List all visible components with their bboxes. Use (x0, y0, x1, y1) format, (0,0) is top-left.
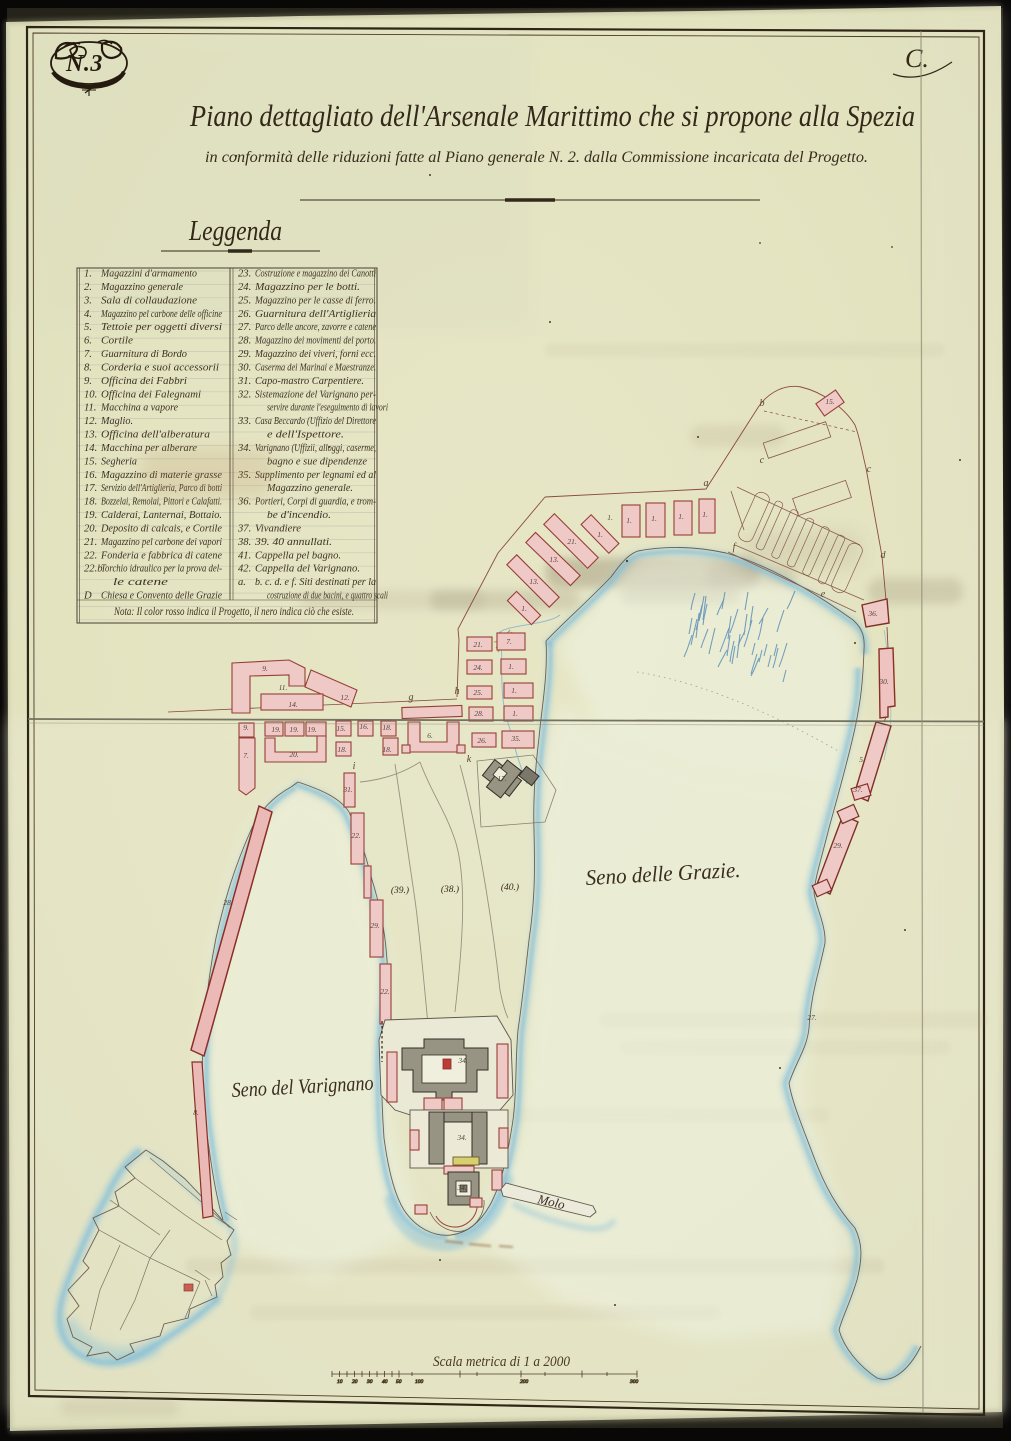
svg-text:17.: 17. (497, 774, 507, 783)
svg-text:100: 100 (415, 1379, 424, 1385)
svg-text:20: 20 (352, 1379, 358, 1385)
svg-text:21.: 21. (567, 537, 577, 546)
svg-text:18.: 18. (382, 723, 392, 732)
svg-text:h: h (455, 686, 460, 697)
svg-text:36.: 36. (867, 609, 878, 618)
svg-text:29.: 29. (370, 921, 380, 930)
svg-text:1.: 1. (521, 604, 527, 613)
svg-text:31.: 31. (342, 785, 353, 794)
svg-text:10: 10 (337, 1379, 343, 1385)
svg-text:1.: 1. (597, 530, 603, 539)
svg-text:c: c (867, 464, 872, 475)
svg-text:a: a (704, 478, 709, 489)
svg-text:C.: C. (905, 44, 929, 73)
svg-text:18.: 18. (337, 745, 347, 754)
svg-text:27.: 27. (807, 1013, 817, 1022)
svg-text:in conformità delle riduzioni: in conformità delle riduzioni fatte al P… (205, 149, 868, 166)
svg-text:7.: 7. (506, 637, 512, 646)
svg-text:34.: 34. (456, 1183, 467, 1192)
svg-text:1.: 1. (626, 516, 632, 525)
svg-text:(39.): (39.) (391, 885, 409, 896)
svg-text:9.: 9. (262, 664, 268, 673)
svg-text:13.: 13. (529, 577, 539, 586)
svg-text:9.: 9. (243, 723, 249, 732)
svg-text:14.: 14. (288, 700, 298, 709)
svg-text:i: i (353, 761, 356, 772)
svg-text:26.: 26. (477, 736, 487, 745)
svg-text:15.: 15. (336, 724, 346, 733)
svg-text:30: 30 (366, 1379, 373, 1385)
svg-text:b: b (760, 398, 765, 409)
svg-text:c: c (760, 455, 765, 466)
svg-text:N.3: N.3 (65, 51, 103, 77)
svg-text:(38.): (38.) (441, 884, 459, 895)
svg-text:22.: 22. (351, 831, 361, 840)
svg-text:22.: 22. (380, 987, 390, 996)
svg-text:19.: 19. (307, 725, 317, 734)
svg-text:Leggenda: Leggenda (188, 215, 282, 247)
svg-text:34.: 34. (456, 1133, 467, 1142)
svg-text:20.: 20. (289, 750, 299, 759)
svg-text:Scala metrica di 1 a 2000: Scala metrica di 1 a 2000 (433, 1354, 571, 1370)
svg-text:e: e (821, 589, 826, 600)
svg-text:Piano dettagliato dell'Arsenal: Piano dettagliato dell'Arsenale Marittim… (189, 98, 915, 133)
svg-text:25.: 25. (473, 688, 483, 697)
svg-text:35.: 35. (510, 734, 521, 743)
svg-text:300: 300 (629, 1379, 639, 1385)
svg-text:28.: 28. (223, 898, 233, 907)
svg-text:24.: 24. (473, 663, 483, 672)
svg-text:18.: 18. (382, 745, 392, 754)
svg-text:g: g (409, 692, 414, 703)
svg-text:8.: 8. (193, 1108, 199, 1117)
svg-text:13.: 13. (549, 555, 559, 564)
svg-text:28.: 28. (474, 709, 484, 718)
svg-text:34.: 34. (457, 1056, 468, 1065)
svg-text:(40.): (40.) (501, 882, 519, 893)
svg-text:k: k (467, 754, 472, 765)
svg-text:5.: 5. (859, 755, 865, 764)
svg-text:6.: 6. (427, 731, 433, 740)
svg-text:7.: 7. (243, 751, 249, 760)
svg-text:37.: 37. (852, 785, 863, 794)
svg-text:19.: 19. (271, 725, 281, 734)
svg-text:19.: 19. (289, 725, 299, 734)
svg-text:16.: 16. (359, 722, 369, 731)
svg-text:1.: 1. (651, 514, 657, 523)
svg-text:1.Magazzini d'armamento 2.Maga: 1.Magazzini d'armamento 2.Magazzino gene… (83, 269, 225, 602)
svg-text:12.: 12. (340, 693, 350, 702)
svg-text:40: 40 (382, 1378, 388, 1385)
svg-text:1.: 1. (607, 513, 613, 522)
svg-text:200: 200 (520, 1379, 529, 1385)
svg-text:11.: 11. (279, 683, 288, 692)
svg-text:29.: 29. (833, 841, 843, 850)
svg-text:1.: 1. (511, 686, 517, 695)
svg-text:50: 50 (396, 1379, 402, 1385)
svg-text:1.: 1. (678, 512, 684, 521)
svg-text:1.: 1. (702, 510, 708, 519)
svg-text:15.: 15. (825, 397, 835, 406)
svg-text:30.: 30. (878, 677, 889, 686)
svg-text:1.: 1. (512, 709, 518, 718)
svg-text:21.: 21. (473, 640, 483, 649)
svg-text:1.: 1. (508, 662, 514, 671)
